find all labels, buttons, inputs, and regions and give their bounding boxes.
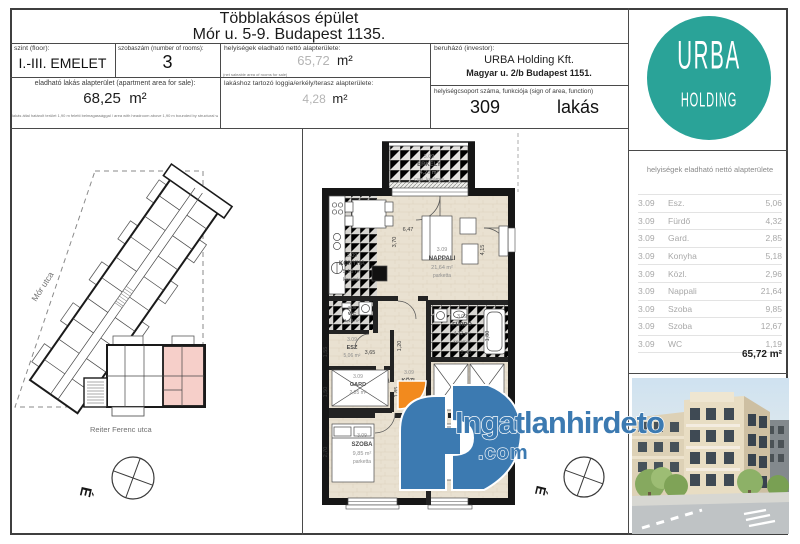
page-title-line2: Mór u. 5-9. Budapest 1135. xyxy=(10,26,568,44)
table-row: 3.09 Nappali 21,64 xyxy=(638,282,782,300)
room-name: Közl. xyxy=(668,269,748,279)
room-name: Szoba xyxy=(668,304,748,314)
room-table-total: 65,72 m² xyxy=(638,349,782,360)
net-area-label: helyiségek eladható nettó alapterülete: xyxy=(224,45,340,52)
room-name: WC xyxy=(668,339,748,349)
unit-function: lakás xyxy=(557,97,599,118)
shaft xyxy=(372,266,387,281)
floor-label: szint (floor): xyxy=(14,45,50,52)
svg-text:3.09: 3.09 xyxy=(353,374,363,380)
room-area: 2,85 xyxy=(748,233,782,243)
svg-text:KÖZL: KÖZL xyxy=(402,377,418,384)
room-area: 12,67 xyxy=(748,321,782,331)
urba-holding-logo: URBA HOLDING xyxy=(647,16,771,140)
unit-label: helyiségcsoport száma, funkciója (sign o… xyxy=(434,88,593,95)
svg-text:1,20: 1,20 xyxy=(397,341,403,352)
svg-text:1,55: 1,55 xyxy=(323,347,329,358)
grid-line xyxy=(430,85,628,86)
apartment-area-note: lakás által határolt terület 1,90 m fele… xyxy=(12,113,218,118)
svg-text:3,70: 3,70 xyxy=(392,237,398,248)
street-label-reiter-ferenc: Reiter Ferenc utca xyxy=(90,425,153,434)
room-area: 1,19 xyxy=(748,339,782,349)
table-row: 3.09 Közl. 2,96 xyxy=(638,264,782,282)
compass-left: É xyxy=(76,457,154,499)
svg-text:1,85: 1,85 xyxy=(394,387,400,398)
room-code: 3.09 xyxy=(638,321,668,331)
svg-text:parketta: parketta xyxy=(457,459,475,465)
svg-text:4,15: 4,15 xyxy=(480,245,486,256)
room-name: Konyha xyxy=(668,251,748,261)
balcony xyxy=(382,142,475,194)
room-name: Nappali xyxy=(668,286,748,296)
grid-line xyxy=(628,150,788,151)
svg-text:kerámia: kerámia xyxy=(453,339,470,345)
floor-value: I.-III. EMELET xyxy=(10,55,115,71)
svg-text:5,18 m²: 5,18 m² xyxy=(343,269,362,275)
table-row: 3.09 Fürdő 4,32 xyxy=(638,212,782,230)
table-row: 3.09 Esz. 5,06 xyxy=(638,194,782,212)
svg-text:1,60: 1,60 xyxy=(403,386,414,392)
net-area-unit: m² xyxy=(337,53,353,68)
room-table: 3.09 Esz. 5,06 3.09 Fürdő 4,32 3.09 Gard… xyxy=(638,194,782,353)
svg-text:3.09: 3.09 xyxy=(347,253,358,259)
room-code: 3.09 xyxy=(638,233,668,243)
loggia-area-number: 4,28 xyxy=(302,92,325,106)
room-table-title: helyiségek eladható nettó alapterülete xyxy=(630,165,790,174)
room-code: 3.09 xyxy=(638,304,668,314)
svg-text:3.09: 3.09 xyxy=(437,247,448,253)
svg-text:SZOBA: SZOBA xyxy=(352,442,374,448)
svg-text:KONYHA: KONYHA xyxy=(339,261,366,267)
logo-text-urba: URBA xyxy=(658,33,760,79)
room-area: 5,06 xyxy=(748,198,782,208)
svg-text:WC: WC xyxy=(348,311,357,317)
svg-text:parketta: parketta xyxy=(353,459,371,465)
svg-text:3.09: 3.09 xyxy=(457,314,467,320)
room-code: 3.09 xyxy=(638,198,668,208)
site-plan: Mór utca Reiter Ferenc utca É xyxy=(11,129,301,534)
street-label-mor-utca: Mór utca xyxy=(29,270,56,303)
svg-text:1,50: 1,50 xyxy=(323,387,329,398)
svg-text:1,80: 1,80 xyxy=(485,331,491,342)
svg-text:3.09: 3.09 xyxy=(461,433,471,439)
dining-table xyxy=(352,200,386,228)
room-code: 3.09 xyxy=(638,216,668,226)
room-area: 4,32 xyxy=(748,216,782,226)
svg-text:6,47: 6,47 xyxy=(403,227,414,233)
svg-text:parketta: parketta xyxy=(433,273,451,279)
sofa xyxy=(422,216,452,260)
svg-text:1,19 m²: 1,19 m² xyxy=(344,318,360,323)
room-name: Esz. xyxy=(668,198,748,208)
loggia-area-unit: m² xyxy=(332,91,347,106)
room-area: 9,85 xyxy=(748,304,782,314)
loggia-area-value: 4,28 m² xyxy=(220,91,430,106)
investor-label: beruházó (investor): xyxy=(434,45,494,52)
room-area: 2,96 xyxy=(748,269,782,279)
investor-address: Magyar u. 2/b Budapest 1151. xyxy=(430,68,628,78)
room-code: 3.09 xyxy=(638,286,668,296)
table-row: 3.09 Szoba 12,67 xyxy=(638,317,782,335)
north-letter: É xyxy=(76,485,95,499)
svg-text:NAPPALI: NAPPALI xyxy=(429,255,456,262)
svg-text:3.09: 3.09 xyxy=(424,154,435,160)
svg-text:FÜRDŐ: FÜRDŐ xyxy=(452,321,472,328)
room-code: 3.09 xyxy=(638,269,668,279)
svg-text:3.09: 3.09 xyxy=(404,370,414,376)
svg-text:GARD: GARD xyxy=(350,382,366,388)
loggia-area-label: lakáshoz tartozó loggia/erkély/terasz al… xyxy=(224,80,373,87)
apartment-area-value: 68,25 m² xyxy=(10,90,220,107)
table-row: 3.09 Gard. 2,85 xyxy=(638,229,782,247)
room-area: 21,64 xyxy=(748,286,782,296)
datasheet-page: Többlakásos épület Mór u. 5-9. Budapest … xyxy=(0,0,800,544)
compass-right: É xyxy=(532,457,604,497)
rooms-count-label: szobaszám (number of rooms): xyxy=(118,45,204,52)
building-photo xyxy=(632,378,789,534)
room-name: Szoba xyxy=(668,321,748,331)
apartment-area-unit: m² xyxy=(129,90,147,107)
grid-line xyxy=(628,373,788,374)
room-name: Gard. xyxy=(668,233,748,243)
armchair xyxy=(460,218,476,234)
photo-street xyxy=(632,492,789,534)
apartment-area-label: eladható lakás alapterület (apartment ar… xyxy=(10,80,220,87)
svg-text:4,32 m²: 4,32 m² xyxy=(454,331,471,337)
svg-text:ERKÉLY: ERKÉLY xyxy=(417,160,441,168)
svg-text:3.09: 3.09 xyxy=(347,337,357,343)
logo-text-holding: HOLDING xyxy=(656,88,761,111)
svg-text:2,85 m²: 2,85 m² xyxy=(350,390,367,396)
north-letter: É xyxy=(532,484,550,497)
rooms-count-value: 3 xyxy=(115,52,220,73)
coffee-table xyxy=(462,244,478,264)
svg-text:3,65: 3,65 xyxy=(365,350,376,356)
svg-text:2,40: 2,40 xyxy=(461,350,472,356)
svg-text:9,85 m²: 9,85 m² xyxy=(353,451,372,457)
floor-plan: 3.09 ERKÉLY 4,28 m² csm. kerámia 3.09 KO… xyxy=(303,129,627,534)
svg-text:4,28 m²: 4,28 m² xyxy=(420,170,439,176)
room-area: 5,18 xyxy=(748,251,782,261)
room-code: 3.09 xyxy=(638,339,668,349)
svg-text:SZOBA: SZOBA xyxy=(456,442,478,448)
svg-text:csm. kerámia: csm. kerámia xyxy=(414,177,444,183)
svg-text:3.09: 3.09 xyxy=(357,433,367,439)
table-row: 3.09 Szoba 9,85 xyxy=(638,300,782,318)
room-name: Fürdő xyxy=(668,216,748,226)
net-area-number: 65,72 xyxy=(297,53,330,68)
svg-text:5,06 m²: 5,06 m² xyxy=(344,353,361,359)
net-area-note: (net saleable area of rooms for sale) xyxy=(223,72,403,77)
svg-text:3.09: 3.09 xyxy=(348,305,357,310)
unit-number: 309 xyxy=(440,97,530,118)
apartment-area-number: 68,25 xyxy=(83,90,121,107)
grid-line xyxy=(628,8,629,535)
svg-text:ESZ: ESZ xyxy=(347,345,358,351)
net-area-value: 65,72 m² xyxy=(220,53,430,68)
svg-text:21,64 m²: 21,64 m² xyxy=(431,265,453,271)
tv-cabinet xyxy=(499,226,508,256)
svg-text:2,70: 2,70 xyxy=(323,447,329,458)
investor-name: URBA Holding Kft. xyxy=(430,54,628,66)
table-row: 3.09 Konyha 5,18 xyxy=(638,247,782,265)
svg-text:12,67 m²: 12,67 m² xyxy=(455,451,477,457)
svg-text:kerámia: kerámia xyxy=(343,277,361,283)
room-code: 3.09 xyxy=(638,251,668,261)
